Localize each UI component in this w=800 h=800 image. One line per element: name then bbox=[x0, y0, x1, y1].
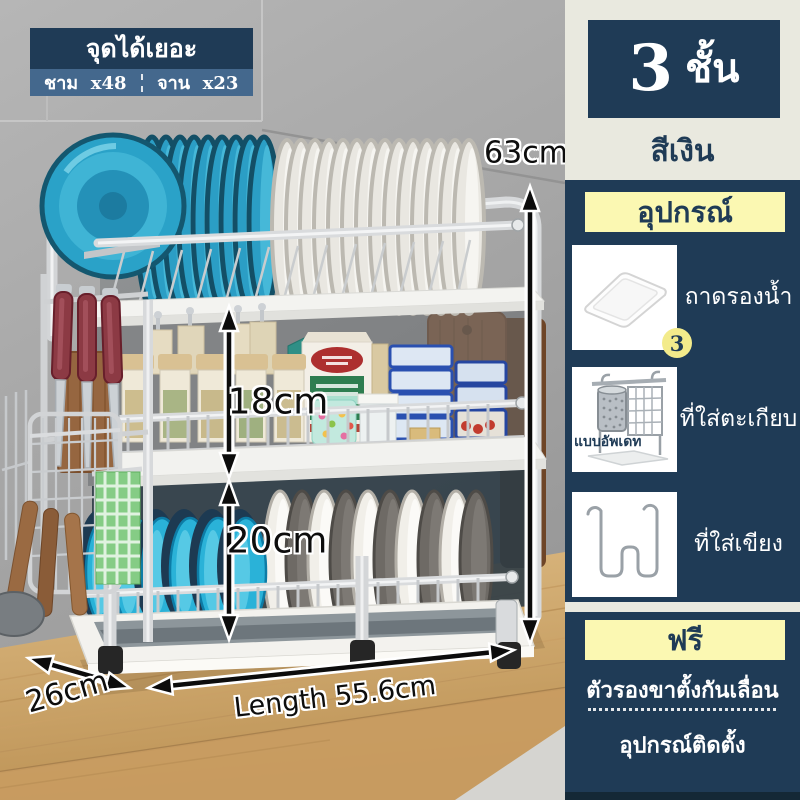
middle-tier-height-label: 18cm bbox=[228, 382, 329, 423]
plate-count: จาน x23 bbox=[143, 68, 254, 97]
capacity-badge-title: จุดได้เยอะ bbox=[30, 28, 253, 69]
accessories-header: อุปกรณ์ bbox=[585, 192, 785, 232]
bowl-count: ชาม x48 bbox=[30, 68, 141, 97]
chopstick-holder-image bbox=[572, 367, 677, 472]
free-item-2: อุปกรณ์ติดตั้ง bbox=[565, 728, 800, 763]
tier-count-box: 3 ชั้น bbox=[588, 20, 780, 118]
drip-tray-icon bbox=[572, 245, 677, 350]
total-height-label: 63cm bbox=[484, 136, 568, 171]
drip-tray-label: ถาดรองน้ำ bbox=[677, 279, 800, 315]
capacity-badge-counts: ชาม x48 จาน x23 bbox=[30, 69, 253, 96]
info-panel: 3 ชั้น สีเงิน อุปกรณ์ 3 ถาดรองน้ำ bbox=[565, 0, 800, 800]
drip-tray-image bbox=[572, 245, 677, 350]
chopstick-holder-label: ที่ใส่ตะเกียบ bbox=[677, 401, 800, 437]
blue-plate-front bbox=[42, 135, 184, 277]
cutting-board-hook-label: ที่ใส่เขียง bbox=[677, 526, 800, 562]
capacity-badge: จุดได้เยอะ ชาม x48 จาน x23 bbox=[30, 28, 253, 96]
tier-number: 3 bbox=[628, 37, 673, 101]
white-lid-container bbox=[358, 394, 398, 444]
drip-tray-qty-badge: 3 bbox=[662, 328, 692, 358]
panel-bottom-strip bbox=[565, 792, 800, 800]
product-photo: 63cm 18cm 20cm 26cm Length 55.6cm จุดได้… bbox=[0, 0, 565, 800]
chopstick-holder-note: แบบอัพเดท bbox=[574, 431, 642, 453]
cutting-board-hook-icon bbox=[572, 492, 677, 597]
bottom-tier-height-label: 20cm bbox=[227, 521, 328, 562]
cutting-board-hook-image bbox=[572, 492, 677, 597]
chopstick-holder-icon bbox=[572, 367, 677, 472]
color-name-label: สีเงิน bbox=[565, 128, 800, 175]
green-towel bbox=[92, 469, 142, 584]
free-items-section: ฟรี ตัวรองขาตั้งกันเลื่อน อุปกรณ์ติดตั้ง bbox=[565, 612, 800, 792]
free-item-1: ตัวรองขาตั้งกันเลื่อน bbox=[565, 673, 800, 708]
dotted-divider bbox=[588, 708, 776, 711]
accessories-section: อุปกรณ์ 3 ถาดรองน้ำ bbox=[565, 180, 800, 602]
free-header: ฟรี bbox=[585, 620, 785, 660]
tier-unit: ชั้น bbox=[685, 49, 740, 89]
